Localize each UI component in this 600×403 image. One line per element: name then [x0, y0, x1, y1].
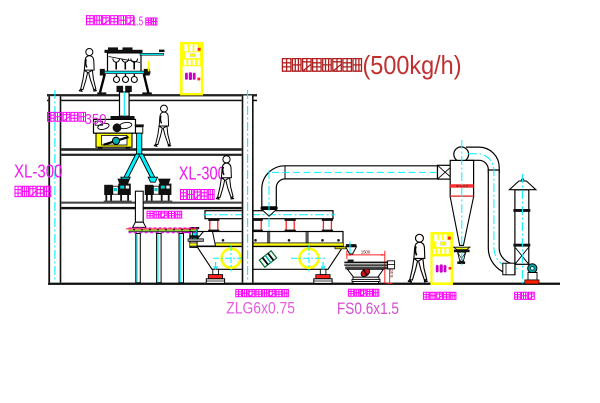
svg-text:1.5: 1.5 [132, 13, 143, 28]
svg-text:(500kg/h): (500kg/h) [363, 50, 462, 80]
svg-text:XL-300: XL-300 [179, 164, 226, 184]
svg-text:1500: 1500 [361, 249, 371, 254]
svg-text:350: 350 [85, 111, 107, 128]
svg-text:ZLG6x0.75: ZLG6x0.75 [226, 300, 295, 318]
svg-text:540: 540 [389, 268, 394, 277]
svg-text:XL-300: XL-300 [14, 162, 63, 182]
svg-text:FS0.6x1.5: FS0.6x1.5 [337, 300, 399, 318]
